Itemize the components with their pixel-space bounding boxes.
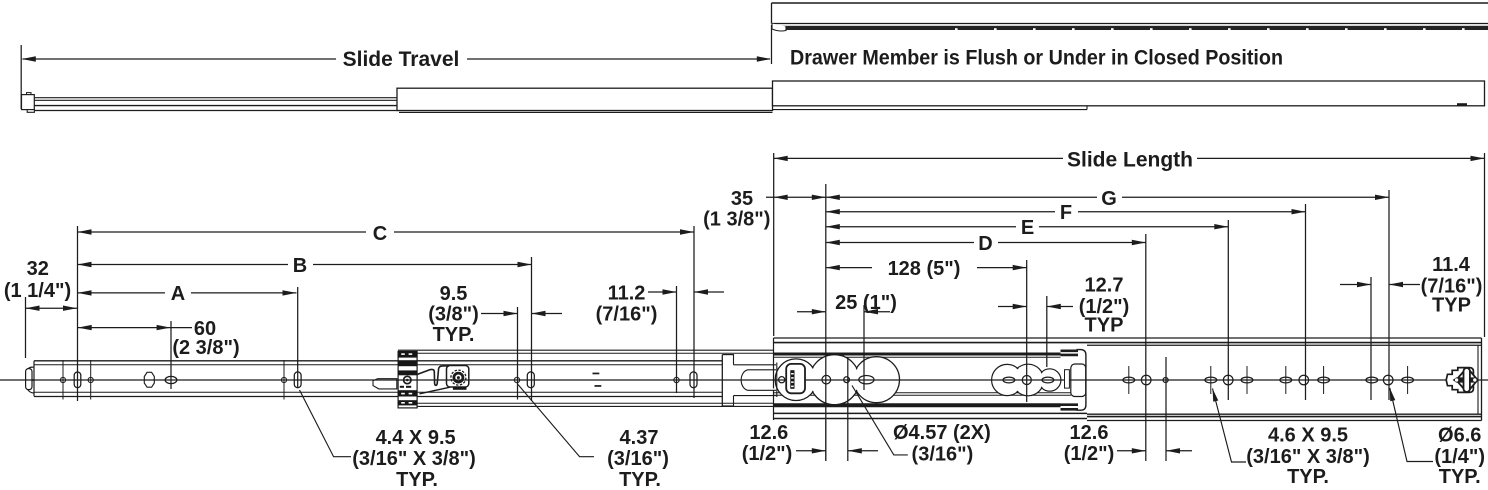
svg-text:12.6: 12.6 [749, 422, 788, 444]
svg-text:TYP.: TYP. [433, 324, 475, 346]
svg-text:E: E [1021, 217, 1034, 239]
svg-text:TYP.: TYP. [396, 469, 438, 490]
svg-text:Drawer Member is Flush or Unde: Drawer Member is Flush or Under in Close… [790, 47, 1283, 70]
svg-text:128 (5"): 128 (5") [888, 258, 961, 280]
svg-text:25 (1"): 25 (1") [835, 292, 897, 314]
svg-text:(1/2"): (1/2") [1064, 443, 1115, 465]
svg-text:(3/16" X 3/8"): (3/16" X 3/8") [1246, 446, 1369, 468]
svg-text:12.7: 12.7 [1085, 275, 1124, 297]
svg-text:(3/16" X 3/8"): (3/16" X 3/8") [352, 448, 475, 470]
svg-text:TYP.: TYP. [1287, 466, 1329, 488]
svg-text:G: G [1101, 188, 1117, 210]
svg-text:(3/8"): (3/8") [428, 304, 479, 326]
svg-text:(3/16"): (3/16") [912, 444, 974, 466]
svg-text:(1 1/4"): (1 1/4") [4, 280, 71, 302]
svg-text:B: B [293, 255, 307, 277]
svg-text:(1/4"): (1/4") [1434, 446, 1485, 468]
svg-text:TYP.: TYP. [1439, 466, 1481, 488]
svg-text:11.4: 11.4 [1432, 254, 1471, 276]
svg-text:(1/2"): (1/2") [742, 443, 793, 465]
svg-text:Slide Length: Slide Length [1067, 149, 1193, 172]
svg-text:12.6: 12.6 [1070, 422, 1109, 444]
svg-text:F: F [1060, 202, 1072, 224]
svg-text:(2 3/8"): (2 3/8") [172, 337, 239, 359]
svg-text:TYP: TYP [1432, 295, 1471, 317]
svg-text:11.2: 11.2 [608, 283, 646, 305]
svg-text:(7/16"): (7/16") [596, 304, 658, 326]
svg-text:Ø6.6: Ø6.6 [1438, 425, 1481, 447]
svg-text:TYP.: TYP. [619, 469, 661, 490]
svg-text:D: D [978, 233, 992, 255]
svg-text:TYP: TYP [1085, 315, 1124, 337]
svg-text:(3/16"): (3/16") [607, 448, 669, 470]
svg-text:A: A [171, 283, 185, 305]
svg-text:(1 3/8"): (1 3/8") [703, 209, 770, 231]
svg-text:32: 32 [27, 258, 49, 280]
svg-text:4.4 X 9.5: 4.4 X 9.5 [376, 427, 456, 449]
svg-text:Ø4.57 (2X): Ø4.57 (2X) [893, 422, 991, 444]
svg-text:4.6 X 9.5: 4.6 X 9.5 [1268, 425, 1348, 447]
svg-text:35: 35 [731, 188, 753, 210]
svg-text:4.37: 4.37 [620, 427, 659, 449]
svg-text:9.5: 9.5 [440, 283, 468, 305]
svg-text:C: C [373, 223, 387, 245]
svg-text:Slide Travel: Slide Travel [343, 48, 460, 71]
